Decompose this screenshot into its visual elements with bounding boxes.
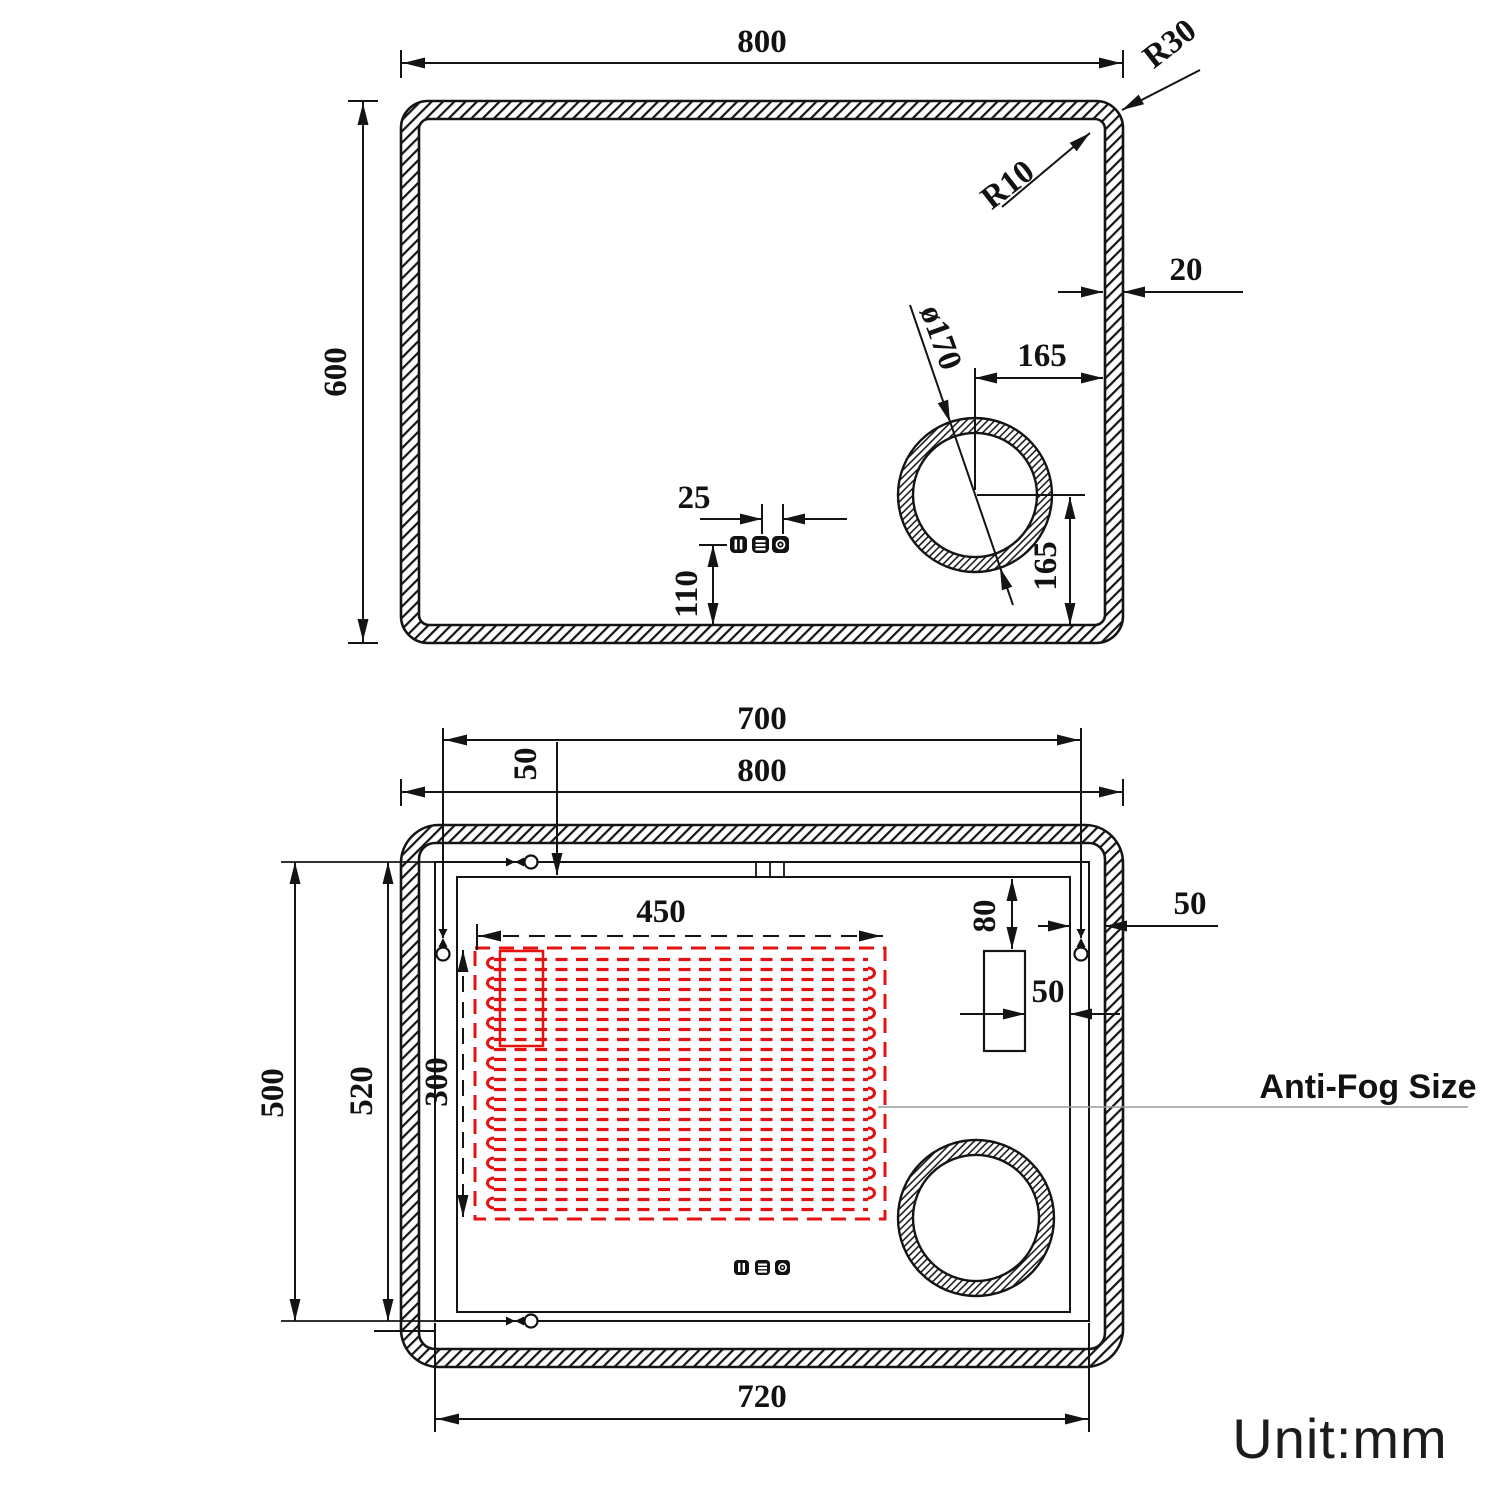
dim-outer-radius-label: R30 [1136, 12, 1203, 75]
dim-led-offset-label: 80 [967, 900, 1003, 933]
dim-inner-radius: R10 [974, 133, 1090, 217]
anti-fog-label: Anti-Fog Size [1259, 1068, 1476, 1106]
dim-heater-width: 450 [477, 894, 883, 950]
dim-hanger-span-label: 700 [737, 701, 787, 737]
dim-backplate-width-label: 720 [737, 1379, 787, 1415]
dim-top-inset: 50 [508, 742, 563, 875]
dim-heater-height: 300 [419, 950, 469, 1217]
dim-backplate-height-label: 520 [344, 1066, 380, 1116]
wire-exit-ticks [756, 862, 784, 877]
front-view: 800 600 R30 R10 20 [318, 12, 1243, 643]
dim-buttons-offset: 110 [669, 545, 727, 625]
power-button-icon [772, 536, 789, 553]
power-button-icon [775, 1260, 790, 1275]
dim-inner-radius-label: R10 [974, 153, 1041, 216]
dim-front-width-label: 800 [737, 24, 787, 60]
dim-frame-thickness-label: 20 [1170, 252, 1203, 288]
brightness-button-icon [755, 1260, 770, 1275]
dim-frame-thickness: 20 [1058, 252, 1243, 298]
dim-speaker-offset-x-label: 165 [1017, 338, 1067, 374]
dim-backplate-width: 720 [435, 1323, 1089, 1432]
anti-fog-callout: Anti-Fog Size [878, 1068, 1477, 1107]
hanger-icon-top [506, 856, 538, 869]
speaker-back [898, 1140, 1054, 1296]
unit-label: Unit:mm [1232, 1407, 1447, 1470]
back-view: 700 800 50 450 300 [255, 701, 1477, 1432]
technical-drawing-page: 800 600 R30 R10 20 [0, 0, 1500, 1500]
touch-buttons-front [730, 536, 789, 553]
defog-button-icon [734, 1260, 749, 1275]
dim-button-pitch: 25 [678, 480, 848, 534]
dim-heater-width-label: 450 [636, 894, 686, 930]
dim-front-height: 600 [318, 101, 378, 643]
touch-buttons-back [734, 1260, 790, 1275]
dim-box-gap-label: 50 [1032, 974, 1065, 1010]
dim-hanger-height: 500 [255, 862, 301, 1321]
defog-button-icon [730, 536, 747, 553]
heating-pad [475, 948, 885, 1219]
dim-hanger-height-label: 500 [255, 1068, 291, 1118]
junction-box [984, 951, 1025, 1051]
dim-button-pitch-label: 25 [678, 480, 711, 516]
dim-buttons-offset-label: 110 [669, 570, 705, 618]
mirror-dimension-drawing: 800 600 R30 R10 20 [0, 0, 1500, 1500]
brightness-button-icon [752, 536, 769, 553]
dim-heater-height-label: 300 [419, 1057, 455, 1107]
dim-right-inset-label: 50 [1174, 886, 1207, 922]
dim-outer-radius: R30 [1122, 12, 1203, 110]
dim-front-width: 800 [401, 24, 1123, 78]
dim-top-inset-label: 50 [508, 748, 544, 781]
dim-right-inset: 50 [1038, 886, 1218, 932]
dim-back-width-label: 800 [737, 753, 787, 789]
dim-speaker-offset-y-label: 165 [1028, 541, 1064, 591]
hanger-icon-bottom [506, 1315, 538, 1328]
dim-front-height-label: 600 [318, 347, 354, 397]
dim-led-offset: 80 [967, 879, 1018, 949]
